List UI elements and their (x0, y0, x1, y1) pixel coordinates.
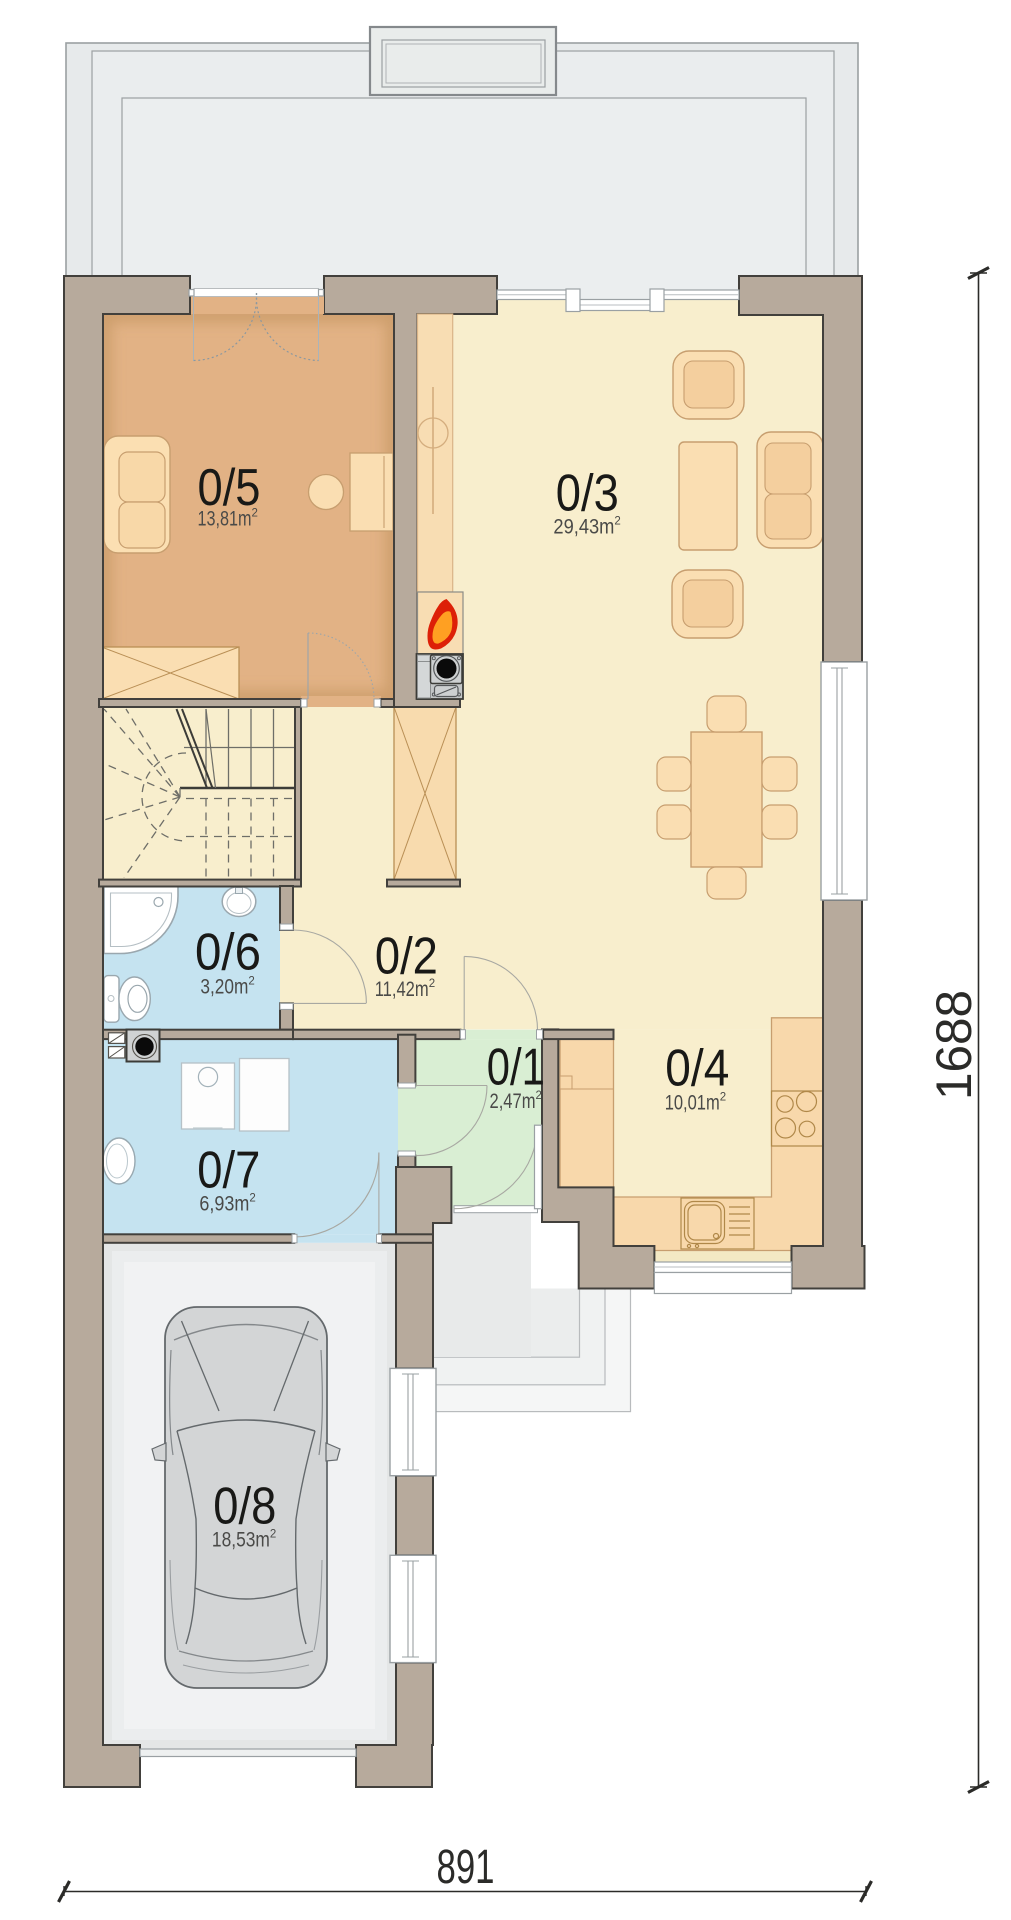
svg-text:0/6: 0/6 (195, 924, 261, 982)
svg-text:0/1: 0/1 (487, 1039, 545, 1097)
svg-text:29,43m2: 29,43m2 (553, 516, 620, 539)
svg-text:891: 891 (437, 1841, 495, 1894)
svg-text:1688: 1688 (926, 990, 982, 1100)
svg-text:0/7: 0/7 (197, 1142, 260, 1200)
svg-text:18,53m2: 18,53m2 (212, 1529, 276, 1552)
svg-text:2,47m2: 2,47m2 (490, 1090, 542, 1113)
svg-text:3,20m2: 3,20m2 (200, 976, 254, 999)
svg-text:13,81m2: 13,81m2 (198, 508, 258, 531)
svg-text:0/4: 0/4 (665, 1040, 729, 1098)
svg-text:0/3: 0/3 (556, 464, 619, 522)
svg-text:0/8: 0/8 (213, 1477, 276, 1535)
svg-text:6,93m2: 6,93m2 (199, 1193, 255, 1216)
svg-text:0/2: 0/2 (375, 928, 438, 986)
svg-text:10,01m2: 10,01m2 (665, 1092, 726, 1115)
svg-text:11,42m2: 11,42m2 (375, 978, 435, 1001)
